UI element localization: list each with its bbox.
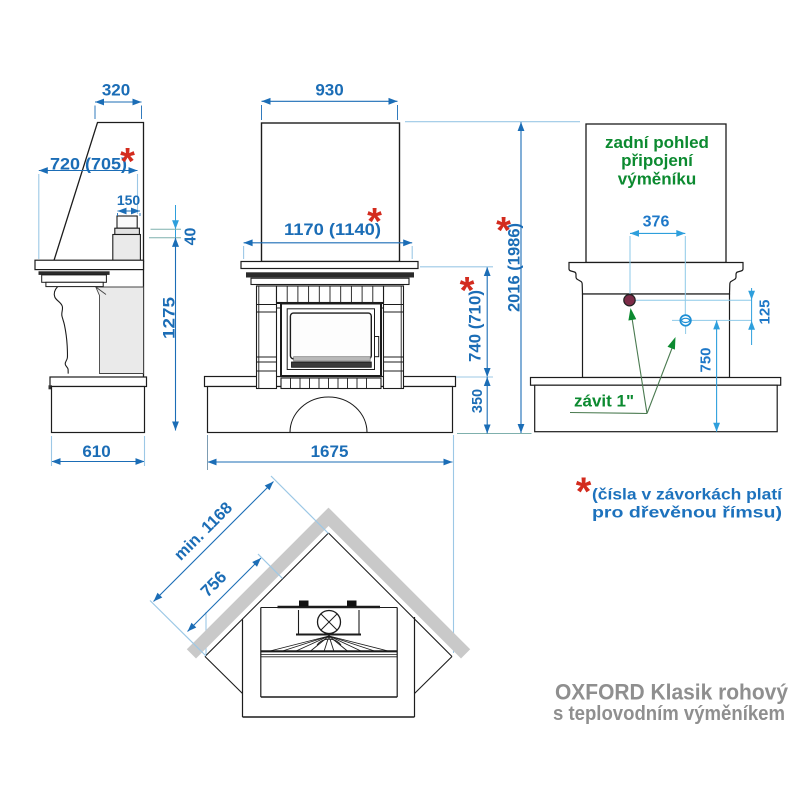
svg-text:OXFORD Klasik rohový: OXFORD Klasik rohový [555,680,789,705]
svg-text:výměníku: výměníku [618,170,696,189]
svg-text:(čísla v závorkách platí: (čísla v závorkách platí [592,487,783,504]
svg-text:610: 610 [82,442,110,461]
svg-text:320: 320 [102,81,130,100]
svg-text:1275: 1275 [160,297,179,339]
svg-text:376: 376 [643,214,670,231]
svg-text:150: 150 [117,192,141,208]
svg-text:závit 1": závit 1" [574,392,634,411]
svg-text:připojení: připojení [621,151,694,170]
svg-text:s teplovodním výměníkem: s teplovodním výměníkem [553,703,785,725]
svg-text:zadní pohled: zadní pohled [605,133,709,152]
svg-text:*: * [460,270,475,312]
svg-text:930: 930 [315,81,343,100]
svg-text:pro dřevěnou římsu): pro dřevěnou římsu) [592,505,782,522]
svg-text:350: 350 [470,389,486,413]
svg-text:*: * [367,201,382,243]
svg-text:125: 125 [757,299,774,324]
svg-text:720 (705): 720 (705) [50,155,127,174]
svg-text:40: 40 [183,228,200,246]
svg-text:*: * [576,470,592,514]
svg-text:*: * [120,141,135,183]
svg-text:750: 750 [698,347,715,372]
svg-text:*: * [496,210,511,252]
svg-text:1675: 1675 [311,442,349,461]
